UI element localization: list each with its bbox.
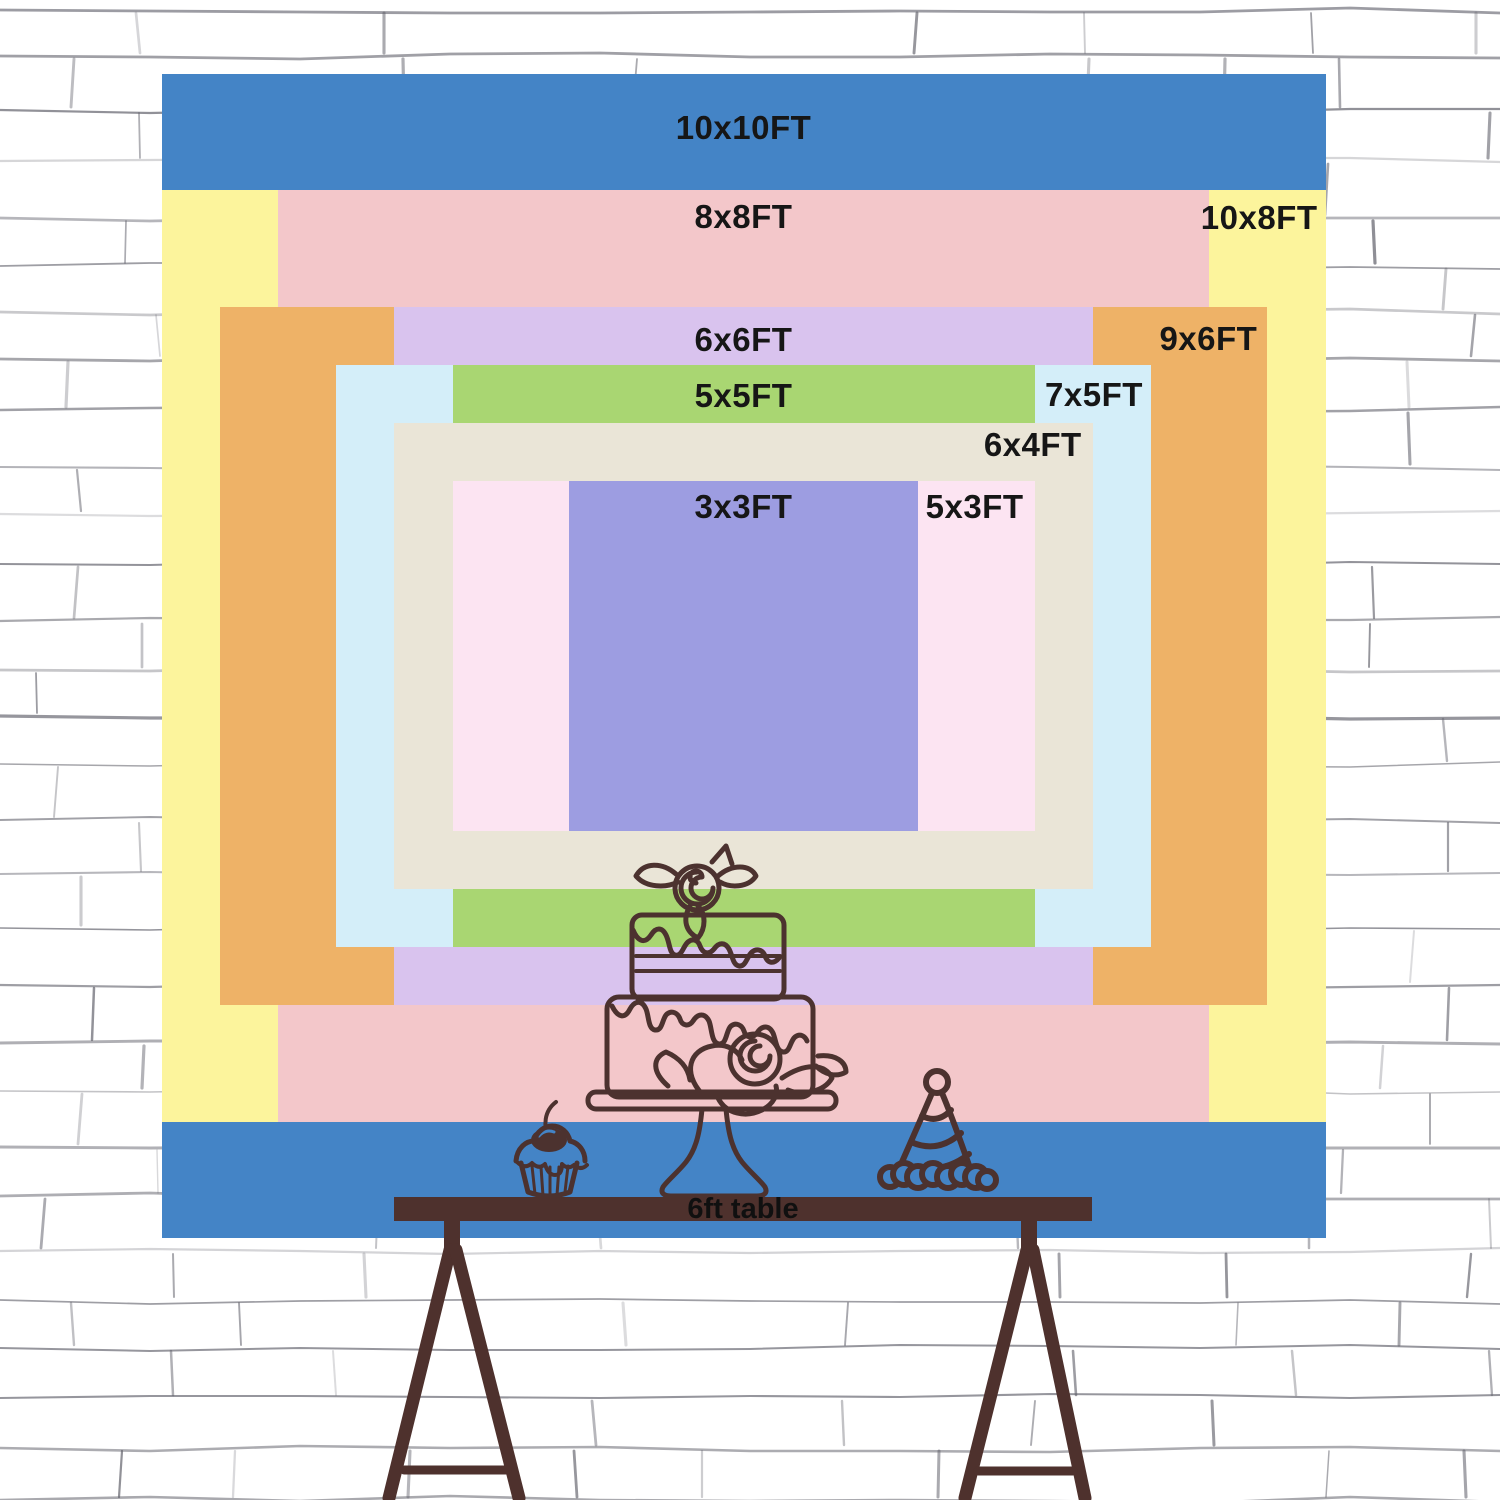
size-label-10x8ft: 10x8FT: [1201, 198, 1318, 238]
size-rectangles-group: 10x10FT10x8FT8x8FT9x6FT6x6FT7x5FT5x5FT6x…: [0, 0, 1500, 1500]
size-label-10x10ft: 10x10FT: [162, 108, 1326, 148]
size-label-6x4ft: 6x4FT: [984, 425, 1082, 465]
size-label-5x5ft: 5x5FT: [453, 376, 1035, 416]
size-label-9x6ft: 9x6FT: [1159, 319, 1257, 359]
size-label-8x8ft: 8x8FT: [278, 197, 1209, 237]
size-label-5x3ft: 5x3FT: [926, 487, 1024, 527]
size-label-7x5ft: 7x5FT: [1045, 375, 1143, 415]
table-label: 6ft table: [394, 1192, 1092, 1226]
size-label-6x6ft: 6x6FT: [394, 320, 1092, 360]
size-rect-3x3ft: [569, 481, 918, 830]
size-label-3x3ft: 3x3FT: [569, 487, 918, 527]
backdrop-size-chart-image: 10x10FT10x8FT8x8FT9x6FT6x6FT7x5FT5x5FT6x…: [0, 0, 1500, 1500]
